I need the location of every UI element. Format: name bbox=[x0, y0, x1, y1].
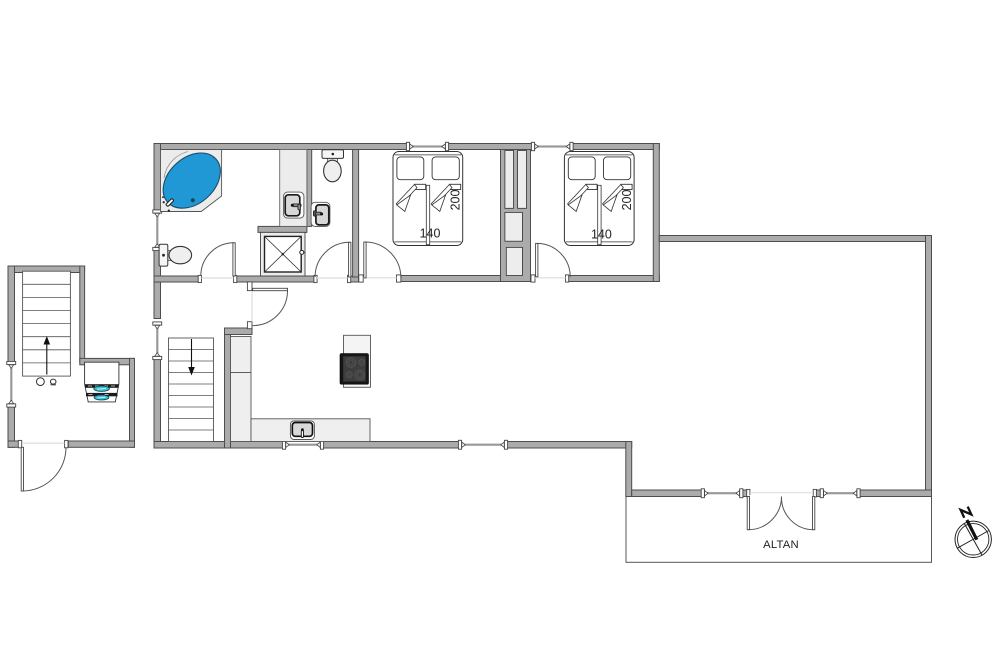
svg-text:ALTAN: ALTAN bbox=[763, 539, 799, 551]
svg-text:140: 140 bbox=[591, 228, 612, 242]
svg-text:200: 200 bbox=[449, 190, 463, 211]
svg-text:200: 200 bbox=[620, 190, 634, 211]
svg-text:140: 140 bbox=[420, 227, 441, 241]
